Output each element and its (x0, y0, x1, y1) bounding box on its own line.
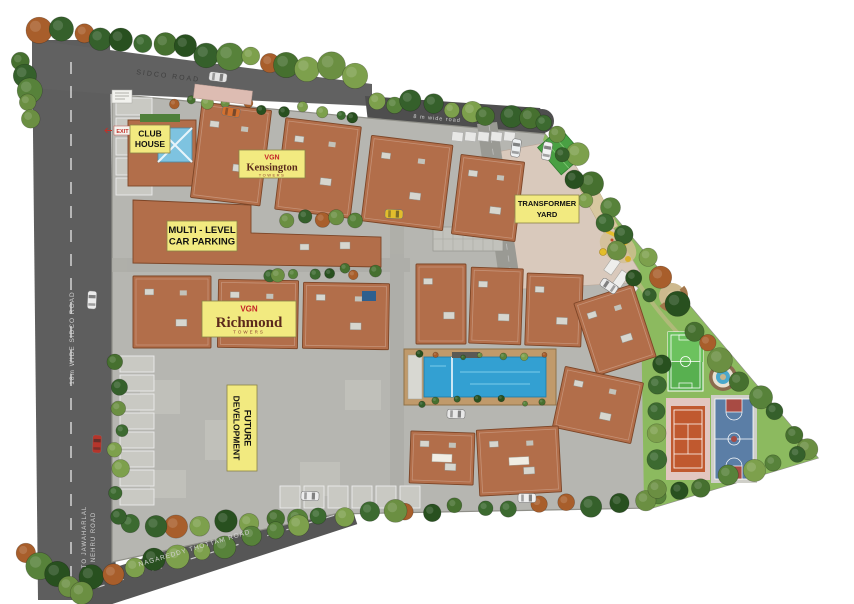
tree-highlight (599, 216, 607, 224)
tree-highlight (317, 215, 323, 221)
transformer-line1: TRANSFORMER (518, 199, 577, 208)
tree-highlight (22, 96, 29, 103)
tree-highlight (570, 146, 580, 156)
tree-highlight (114, 381, 121, 388)
tree-highlight (341, 265, 345, 269)
kensington-brand: VGN (264, 155, 279, 162)
roof-unit (294, 136, 304, 143)
pool-pavilion (408, 355, 422, 399)
roof-unit (478, 281, 487, 287)
roof-unit (523, 467, 534, 475)
roof-unit (468, 170, 478, 177)
car-rear-window (388, 210, 391, 217)
future-line2: DEVELOPMENT (232, 396, 242, 462)
tree-highlight (580, 195, 586, 201)
roof-unit (340, 242, 350, 249)
club-house-line2: HOUSE (135, 139, 166, 149)
tree-highlight (322, 56, 334, 68)
building (361, 135, 453, 230)
parked-car-stall (478, 131, 490, 141)
parking-stall (120, 489, 154, 505)
tree-highlight (291, 518, 300, 527)
roof-unit (444, 312, 455, 319)
water-tank (362, 291, 376, 301)
tree-highlight (113, 511, 120, 518)
tree-highlight (21, 82, 32, 93)
tree-highlight (30, 21, 41, 32)
car-body (92, 435, 102, 453)
roof-unit (145, 289, 154, 295)
parking-line2: CAR PARKING (169, 237, 235, 248)
tree-highlight (157, 36, 167, 46)
tree-highlight (650, 452, 658, 460)
club-house-label: CLUB HOUSE (130, 125, 170, 153)
tree-highlight (350, 215, 356, 221)
car-body (209, 71, 228, 82)
tree-highlight (109, 444, 115, 450)
tree-highlight (610, 244, 618, 252)
tree-highlight (371, 267, 376, 272)
building-roof (416, 264, 466, 344)
roof-unit (526, 440, 533, 445)
tree-highlight (371, 95, 378, 102)
pool-water (424, 357, 546, 397)
car-rear-window (93, 447, 100, 450)
transformer-line2: YARD (537, 210, 558, 219)
parked-car-stall (452, 131, 464, 141)
roof-unit (355, 296, 362, 301)
tree-highlight (420, 402, 423, 405)
tree-highlight (551, 128, 558, 135)
building (133, 276, 211, 348)
parking-stall (328, 486, 348, 508)
tree-highlight (53, 20, 63, 30)
tree-highlight (349, 114, 354, 119)
tree-highlight (61, 579, 70, 588)
parked-car-stall (465, 131, 477, 141)
car (87, 291, 97, 309)
building (476, 426, 561, 496)
tree-highlight (299, 103, 303, 107)
tree-highlight (346, 67, 357, 78)
roof-unit (497, 175, 505, 181)
tennis-court (666, 398, 710, 480)
roof-unit (449, 443, 456, 448)
tree-highlight (417, 351, 420, 354)
tree-highlight (148, 518, 157, 527)
tree-highlight (461, 356, 463, 358)
tree-highlight (92, 31, 102, 41)
car-body (301, 491, 319, 501)
play-equipment (611, 239, 614, 242)
transformer-yard-label: TRANSFORMER YARD (515, 195, 579, 223)
gate-sign (112, 90, 132, 103)
tree-highlight (273, 270, 279, 276)
tree-highlight (263, 56, 271, 64)
play-equipment (600, 249, 607, 256)
tree-highlight (747, 462, 756, 471)
tree-highlight (113, 403, 119, 409)
roof-unit (420, 441, 429, 447)
tree-highlight (543, 353, 545, 355)
tree-highlight (265, 271, 270, 276)
exit-label: EXIT (116, 129, 129, 135)
building-roof (133, 276, 211, 348)
tree-highlight (478, 353, 480, 355)
basketball-centerdot (731, 436, 737, 442)
paved-patch (345, 380, 381, 410)
tree-highlight (338, 510, 346, 518)
tree-highlight (523, 402, 525, 404)
tree-highlight (363, 504, 371, 512)
paved-patch (150, 470, 186, 498)
roof-unit (241, 126, 249, 132)
car (209, 71, 228, 82)
future-line1: FUTURE (243, 410, 253, 447)
pool-pergola (452, 352, 480, 358)
fountain-center (720, 374, 726, 380)
car-windshield (396, 211, 399, 218)
building (525, 273, 583, 347)
roof-unit (350, 323, 361, 330)
jawaharlal-road-label-1: TO JAWAHARLAL (82, 506, 88, 568)
tree-highlight (653, 269, 662, 278)
car-windshield (529, 495, 532, 502)
tree-highlight (48, 565, 59, 576)
tree-highlight (479, 109, 487, 117)
car (301, 491, 319, 501)
tree-highlight (673, 484, 680, 491)
tree-highlight (193, 519, 201, 527)
roof-unit (418, 158, 426, 164)
tree-highlight (311, 270, 315, 274)
tree-highlight (168, 518, 178, 528)
roof-chip (432, 454, 452, 463)
tree-highlight (171, 100, 175, 104)
richmond-brand: VGN (240, 305, 258, 314)
tree-highlight (270, 524, 277, 531)
tree-highlight (331, 212, 337, 218)
roof-unit (381, 152, 391, 159)
tree-highlight (650, 405, 657, 412)
car-body (385, 209, 403, 219)
building (409, 431, 475, 485)
tree-highlight (244, 50, 252, 58)
tree-highlight (277, 56, 288, 67)
tree-highlight (109, 356, 116, 363)
tree-highlight (465, 104, 474, 113)
car (447, 409, 465, 419)
tree-highlight (282, 215, 288, 221)
tree-highlight (242, 516, 250, 524)
tree-highlight (74, 585, 84, 595)
tree-highlight (721, 468, 730, 477)
tree-highlight (446, 105, 452, 111)
sidco-18m-road-label: 18m WIDE SIDCO ROAD (69, 291, 76, 384)
kensington-label: VGN Kensington TOWERS (239, 150, 305, 178)
tree-highlight (17, 67, 27, 77)
tree-highlight (711, 351, 722, 362)
play-equipment (625, 256, 631, 262)
tree-highlight (106, 567, 115, 576)
future-development-label: FUTURE DEVELOPMENT (227, 385, 257, 471)
car-body (447, 409, 465, 419)
car-rear-window (304, 492, 307, 499)
tree-highlight (613, 496, 621, 504)
tree-highlight (403, 93, 412, 102)
roof-unit (266, 294, 273, 299)
tree-highlight (114, 462, 122, 470)
roof-unit (210, 121, 220, 128)
tree-highlight (767, 457, 774, 464)
tree-highlight (24, 112, 32, 120)
roof-chip (509, 456, 529, 465)
tree-highlight (523, 110, 532, 119)
tree-highlight (584, 499, 593, 508)
tree-highlight (732, 375, 740, 383)
tree-highlight (218, 513, 227, 522)
tree-highlight (475, 396, 478, 399)
tree-highlight (669, 295, 680, 306)
car-body (518, 494, 536, 503)
tree-highlight (30, 556, 41, 567)
tree-highlight (501, 354, 504, 357)
tree-highlight (540, 400, 543, 403)
tree-highlight (557, 149, 563, 155)
tree-highlight (433, 398, 436, 401)
roof-unit (535, 286, 544, 292)
building (469, 267, 524, 345)
building (302, 282, 389, 349)
tree-highlight (792, 449, 799, 456)
tree-highlight (604, 200, 612, 208)
tree-highlight (617, 228, 625, 236)
tree-highlight (651, 482, 659, 490)
tree-highlight (688, 325, 696, 333)
roof-unit (498, 314, 509, 321)
basketball-key (726, 399, 742, 412)
tree-highlight (326, 270, 330, 274)
roof-unit (424, 278, 433, 284)
building (416, 264, 466, 344)
tree-highlight (136, 37, 144, 45)
parked-car-stall (491, 131, 503, 141)
tree-highlight (788, 429, 795, 436)
tree-highlight (499, 396, 502, 399)
tree-highlight (645, 290, 651, 296)
driveway (390, 220, 404, 510)
car-body (87, 291, 97, 309)
building-roof (525, 273, 583, 347)
roof-unit (489, 441, 498, 447)
roof-unit (556, 317, 567, 324)
roof-unit (176, 319, 187, 326)
car (385, 209, 403, 219)
tree-highlight (83, 568, 93, 578)
parking-stall (280, 486, 300, 508)
tree-highlight (639, 493, 648, 502)
tree-highlight (298, 60, 308, 70)
roof-unit (316, 294, 325, 300)
tree-highlight (14, 55, 22, 63)
tree-highlight (280, 108, 285, 113)
tree-highlight (583, 175, 593, 185)
building-roof (469, 267, 524, 345)
tree-highlight (258, 107, 262, 111)
tree-highlight (480, 503, 486, 509)
club-house-line1: CLUB (138, 129, 162, 139)
tree-highlight (318, 108, 323, 113)
tree-highlight (197, 47, 207, 57)
roof-unit (180, 290, 187, 295)
tree-highlight (753, 389, 763, 399)
car (518, 494, 536, 503)
richmond-suffix: TOWERS (233, 330, 265, 335)
club-house-roof-garden (140, 114, 180, 122)
tree-highlight (434, 353, 436, 355)
car-rear-window (450, 410, 453, 417)
tree-highlight (702, 337, 709, 344)
kensington-suffix: TOWERS (259, 173, 285, 178)
tree-highlight (300, 212, 306, 218)
tree-highlight (290, 271, 294, 275)
tree-highlight (387, 503, 397, 513)
tree-highlight (19, 546, 27, 554)
tree-highlight (118, 426, 123, 431)
tree-highlight (128, 561, 136, 569)
building-roof (361, 135, 453, 230)
tree-highlight (78, 26, 86, 34)
tree-highlight (350, 271, 354, 275)
tree-highlight (426, 507, 433, 514)
tree-highlight (113, 31, 123, 41)
roof-unit (300, 244, 309, 250)
tree-highlight (270, 512, 278, 520)
building-roof (302, 282, 389, 349)
jawaharlal-road-label-2: NEHRU ROAD (91, 512, 97, 562)
roof-unit (328, 142, 336, 148)
roof-unit (489, 206, 501, 214)
parking-stall (120, 356, 154, 372)
car-windshield (312, 493, 315, 500)
parking-line1: MULTI - LEVEL (168, 225, 236, 236)
roof-unit (320, 178, 332, 186)
tree-highlight (628, 272, 635, 279)
tree-highlight (769, 405, 776, 412)
tree-highlight (650, 426, 658, 434)
tree-highlight (694, 481, 702, 489)
car-rear-window (88, 303, 95, 306)
roof-unit (409, 192, 421, 200)
car-rear-window (521, 495, 524, 502)
tree-highlight (642, 251, 650, 259)
tree-highlight (449, 500, 455, 506)
car-windshield (458, 411, 461, 418)
tree-highlight (560, 496, 567, 503)
car-windshield (89, 295, 96, 298)
tree-highlight (568, 173, 576, 181)
tree-highlight (312, 510, 319, 517)
tree-highlight (389, 99, 396, 106)
roof-unit (230, 292, 239, 298)
tree-highlight (111, 488, 117, 494)
tree-highlight (655, 358, 663, 366)
tree-highlight (521, 354, 524, 357)
tree-highlight (220, 47, 232, 59)
tree-highlight (427, 96, 435, 104)
tree-highlight (455, 397, 458, 400)
tree-highlight (538, 117, 545, 124)
multi-level-parking-label: MULTI - LEVEL CAR PARKING (167, 221, 237, 251)
tree-highlight (338, 112, 342, 116)
tree-highlight (504, 108, 513, 117)
tree-highlight (188, 97, 192, 101)
roof-unit (445, 463, 456, 470)
tree-highlight (651, 378, 659, 386)
site-plan-canvas: EXIT SIDCO ROAD 8 m wide road 18m WIDE S… (0, 0, 854, 604)
tree-highlight (178, 38, 187, 47)
building (451, 154, 524, 241)
richmond-label: VGN Richmond TOWERS (202, 301, 296, 337)
car (92, 435, 102, 453)
car-windshield (94, 439, 101, 442)
tree-highlight (503, 503, 510, 510)
